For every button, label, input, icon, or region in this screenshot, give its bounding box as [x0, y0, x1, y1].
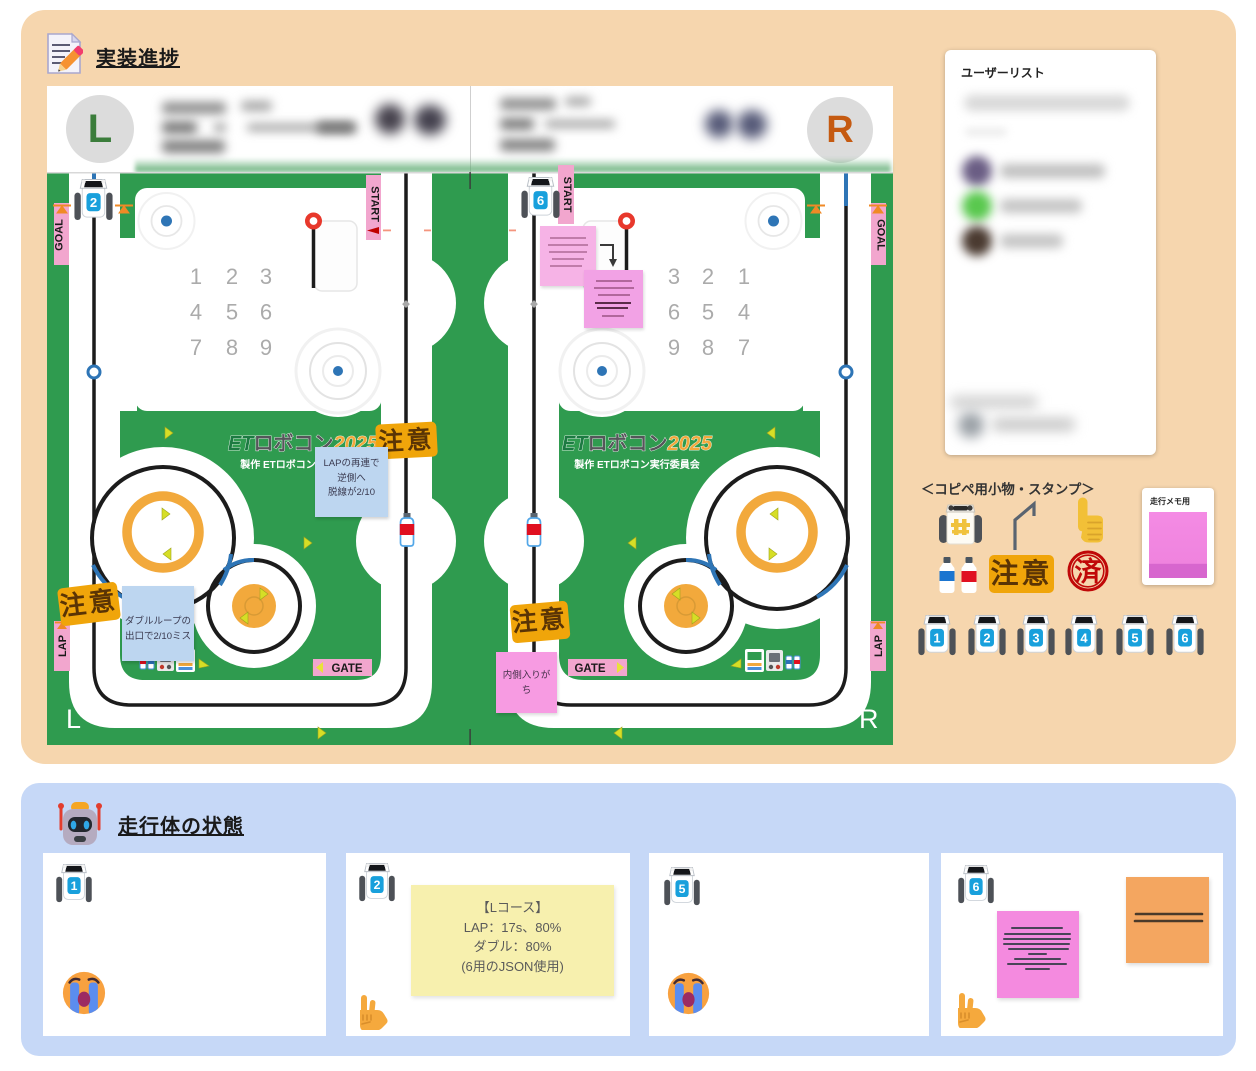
svg-text:1: 1: [738, 264, 750, 289]
svg-text:9: 9: [668, 335, 680, 360]
svg-text:6: 6: [260, 300, 272, 325]
svg-text:START: START: [561, 177, 573, 213]
svg-text:GATE: GATE: [574, 663, 605, 675]
svg-text:4: 4: [738, 300, 750, 325]
svg-text:7: 7: [738, 335, 750, 360]
svg-text:1: 1: [71, 879, 78, 893]
svg-text:5: 5: [1131, 630, 1138, 645]
svg-text:START: START: [369, 186, 381, 222]
svg-text:製作 ETロボコン実行委員会: 製作 ETロボコン実行委員会: [573, 458, 700, 471]
svg-text:GOAL: GOAL: [54, 219, 66, 251]
svg-text:2: 2: [374, 878, 381, 892]
svg-text:6: 6: [973, 880, 980, 894]
svg-text:5: 5: [702, 300, 714, 325]
svg-text:R: R: [859, 704, 879, 734]
svg-text:3: 3: [1032, 630, 1039, 645]
svg-text:6: 6: [1181, 630, 1188, 645]
svg-text:GOAL: GOAL: [875, 219, 887, 251]
svg-text:済: 済: [1075, 556, 1103, 587]
svg-text:5: 5: [679, 882, 686, 896]
svg-text:6: 6: [537, 193, 544, 208]
svg-text:L: L: [66, 704, 81, 734]
svg-text:2: 2: [90, 195, 97, 210]
svg-text:3: 3: [668, 264, 680, 289]
svg-text:3: 3: [260, 264, 272, 289]
svg-text:7: 7: [190, 335, 202, 360]
svg-text:4: 4: [1080, 630, 1088, 645]
svg-text:5: 5: [226, 300, 238, 325]
svg-text:4: 4: [190, 300, 202, 325]
svg-text:6: 6: [668, 300, 680, 325]
svg-text:1: 1: [190, 264, 202, 289]
svg-text:GATE: GATE: [331, 663, 362, 675]
svg-text:9: 9: [260, 335, 272, 360]
svg-text:2: 2: [983, 630, 990, 645]
svg-text:8: 8: [226, 335, 238, 360]
svg-text:LAP: LAP: [57, 635, 69, 657]
svg-text:2: 2: [702, 264, 714, 289]
svg-text:2: 2: [226, 264, 238, 289]
svg-text:LAP: LAP: [873, 635, 885, 657]
svg-text:8: 8: [702, 335, 714, 360]
svg-text:ETロボコン2025: ETロボコン2025: [562, 432, 713, 455]
svg-text:1: 1: [933, 630, 940, 645]
